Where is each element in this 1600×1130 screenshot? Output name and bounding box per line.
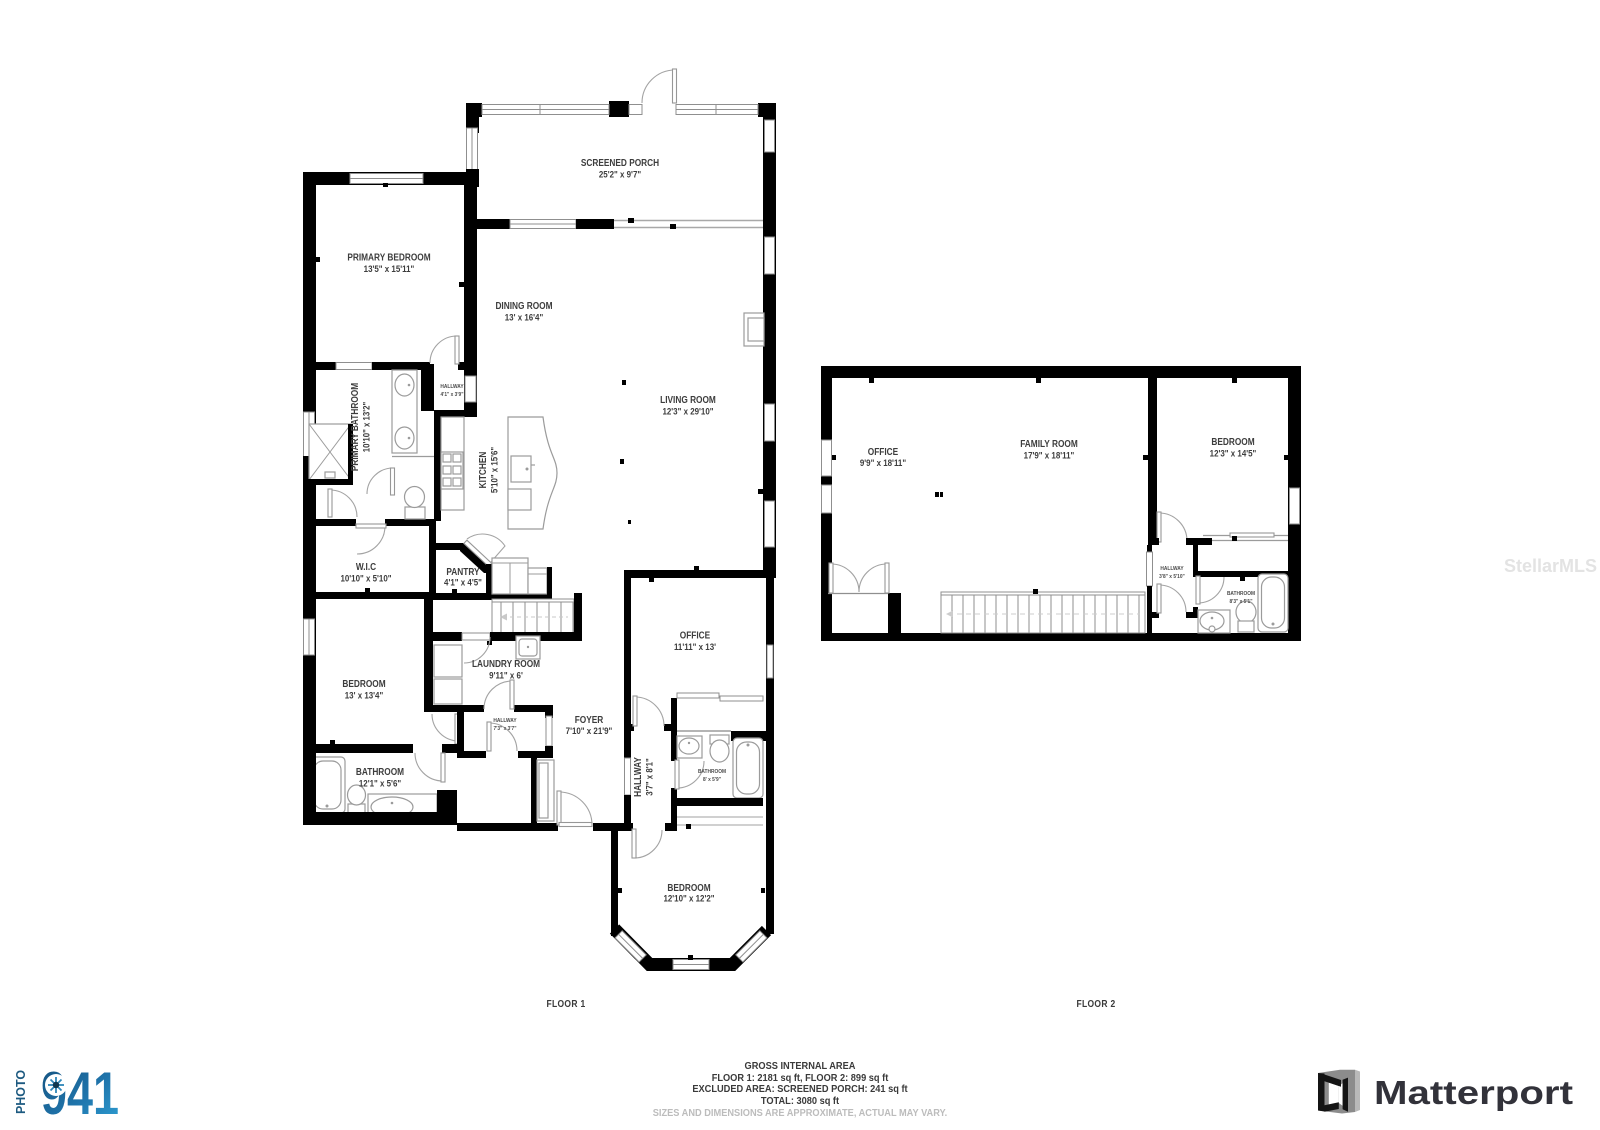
- svg-text:BATHROOM: BATHROOM: [698, 769, 726, 775]
- svg-text:12'3" x 29'10": 12'3" x 29'10": [662, 407, 713, 417]
- svg-text:8' x 5'9": 8' x 5'9": [703, 777, 721, 783]
- svg-text:HALLWAY: HALLWAY: [493, 718, 516, 724]
- svg-text:11'11" x 13': 11'11" x 13': [674, 642, 716, 652]
- svg-text:3'7" x 8'1": 3'7" x 8'1": [645, 758, 655, 795]
- svg-text:OFFICE: OFFICE: [680, 631, 711, 642]
- svg-text:BATHROOM: BATHROOM: [356, 767, 404, 778]
- svg-text:PRIMARY BATHROOM: PRIMARY BATHROOM: [350, 383, 361, 471]
- svg-text:KITCHEN: KITCHEN: [478, 452, 489, 489]
- svg-text:W.I.C: W.I.C: [356, 562, 376, 573]
- svg-text:4'1" x 4'5": 4'1" x 4'5": [444, 578, 482, 588]
- svg-text:LIVING ROOM: LIVING ROOM: [660, 395, 716, 406]
- svg-text:12'10" x 12'2": 12'10" x 12'2": [663, 894, 714, 904]
- svg-text:13'5" x 15'11": 13'5" x 15'11": [364, 264, 415, 274]
- svg-text:FLOOR 1: FLOOR 1: [546, 999, 585, 1010]
- svg-text:13' x 13'4": 13' x 13'4": [345, 691, 384, 701]
- svg-text:9'9" x 18'11": 9'9" x 18'11": [860, 458, 906, 468]
- svg-text:3'8" x 5'10": 3'8" x 5'10": [1159, 574, 1185, 580]
- svg-text:7'10" x 21'9": 7'10" x 21'9": [566, 726, 613, 736]
- svg-text:BEDROOM: BEDROOM: [342, 679, 385, 690]
- svg-text:25'2" x 9'7": 25'2" x 9'7": [599, 170, 641, 180]
- svg-text:10'10" x 5'10": 10'10" x 5'10": [340, 574, 391, 584]
- svg-text:4'1" x 3'9": 4'1" x 3'9": [441, 392, 464, 398]
- svg-text:PHOTO: PHOTO: [13, 1070, 28, 1114]
- svg-text:17'9" x 18'11": 17'9" x 18'11": [1024, 451, 1075, 461]
- svg-text:FOYER: FOYER: [575, 715, 604, 726]
- svg-text:12'3" x 14'5": 12'3" x 14'5": [1210, 449, 1257, 459]
- svg-text:BEDROOM: BEDROOM: [1211, 437, 1254, 448]
- svg-text:HALLWAY: HALLWAY: [440, 384, 463, 390]
- svg-text:7'3" x 3'7": 7'3" x 3'7": [494, 726, 517, 732]
- svg-text:SIZES AND DIMENSIONS ARE APPRO: SIZES AND DIMENSIONS ARE APPROXIMATE, AC…: [653, 1108, 948, 1119]
- svg-text:OFFICE: OFFICE: [868, 447, 899, 458]
- svg-text:BEDROOM: BEDROOM: [667, 883, 710, 894]
- svg-text:9'11" x 6': 9'11" x 6': [489, 671, 523, 681]
- svg-text:Matterport: Matterport: [1374, 1074, 1573, 1111]
- svg-text:FLOOR 1: 2181 sq ft, FLOOR 2:: FLOOR 1: 2181 sq ft, FLOOR 2: 899 sq ft: [712, 1073, 889, 1084]
- svg-text:SCREENED PORCH: SCREENED PORCH: [581, 158, 659, 169]
- svg-text:FAMILY ROOM: FAMILY ROOM: [1020, 439, 1078, 450]
- svg-text:HALLWAY: HALLWAY: [1160, 566, 1183, 572]
- svg-text:StellarMLS: StellarMLS: [1504, 556, 1597, 576]
- svg-text:12'1" x 5'6": 12'1" x 5'6": [359, 779, 401, 789]
- svg-text:PANTRY: PANTRY: [446, 567, 480, 578]
- svg-text:PRIMARY BEDROOM: PRIMARY BEDROOM: [347, 253, 430, 264]
- svg-text:10'10" x 13'2": 10'10" x 13'2": [362, 402, 372, 453]
- svg-text:DINING ROOM: DINING ROOM: [495, 301, 552, 312]
- svg-text:GROSS INTERNAL AREA: GROSS INTERNAL AREA: [745, 1061, 856, 1072]
- svg-text:5'10" x 15'6": 5'10" x 15'6": [490, 447, 500, 493]
- svg-text:EXCLUDED AREA: SCREENED PORCH:: EXCLUDED AREA: SCREENED PORCH: 241 sq ft: [692, 1084, 908, 1095]
- svg-text:FLOOR 2: FLOOR 2: [1076, 999, 1115, 1010]
- svg-text:LAUNDRY ROOM: LAUNDRY ROOM: [472, 659, 540, 670]
- svg-text:TOTAL: 3080 sq ft: TOTAL: 3080 sq ft: [761, 1096, 840, 1107]
- svg-text:BATHROOM: BATHROOM: [1227, 591, 1255, 597]
- svg-text:8'3" x 5'1": 8'3" x 5'1": [1230, 599, 1253, 605]
- svg-text:HALLWAY: HALLWAY: [633, 757, 644, 797]
- svg-text:13' x 16'4": 13' x 16'4": [505, 313, 544, 323]
